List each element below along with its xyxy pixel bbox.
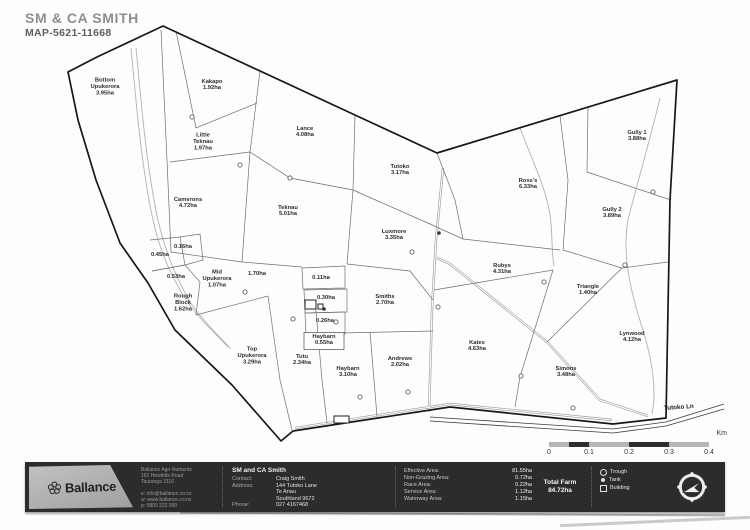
trough-icon (406, 390, 410, 394)
paddock-label: Gully 13.88ha (627, 130, 647, 142)
trough-icon (410, 250, 414, 254)
paddock-label-line: 0.45ha (151, 252, 170, 258)
paddock-label-line: Teknau (193, 139, 213, 145)
map-symbols (190, 115, 655, 423)
paddock-boundary-line (515, 270, 553, 407)
compass-icon (674, 469, 710, 505)
paddock-boundary-line (242, 262, 302, 267)
customer-field-value: 027 4167468 (276, 502, 308, 509)
paddock-label-line: Gully 2 (602, 207, 621, 213)
paddock-label-line: Tutu (296, 354, 309, 360)
creek-line (520, 128, 554, 266)
trough-legend-icon (600, 469, 607, 476)
trough-icon (243, 290, 247, 294)
paddock-boundary-line (347, 190, 353, 264)
paddock-label-line: 3.10ha (339, 372, 358, 378)
road-label: Tutoko Ln (664, 403, 695, 412)
paddock-label-line: 5.01ha (279, 211, 298, 217)
trough-icon (288, 176, 292, 180)
scan-shadow (180, 512, 725, 517)
paddock-label-line: 4.63ha (468, 346, 487, 352)
paddock-boundary-line (353, 115, 355, 190)
paddock-label-line: 4.08ha (296, 132, 315, 138)
brand-logo-block: Ballance (29, 465, 133, 509)
paddock-label-line: Simons (556, 366, 577, 372)
paddock-label-line: Teknau (278, 205, 298, 211)
area-stat-value: 0.22ha (515, 482, 532, 489)
total-farm-label: Total Farm (544, 479, 577, 487)
paddock-label: Kakapo1.92ha (202, 79, 223, 91)
scan-page-edge (560, 516, 750, 527)
paddock-label-line: 0.55ha (315, 340, 334, 346)
footer-divider (222, 467, 224, 507)
paddock-boundary-line (250, 152, 353, 190)
trough-icon (436, 305, 440, 309)
paddock-boundary-line (587, 172, 671, 200)
area-stat-value: 0.72ha (515, 475, 532, 482)
building-icon (334, 416, 349, 423)
paddock-label-line: Upukerora (91, 84, 121, 90)
paddock-label-line: 4.72ha (179, 203, 198, 209)
company-contact-line: p: 0800 222 090 (141, 503, 217, 509)
paddock-label-line: Lance (297, 126, 315, 132)
trough-icon (571, 406, 575, 410)
paddock-boundary-line (242, 152, 250, 262)
area-summary-block: Effective Area:81.55haNon-Grazing Area:0… (400, 462, 532, 512)
paddock-label-line: 1.07ha (208, 282, 227, 288)
customer-field-label: Phone: (232, 502, 276, 509)
legend-item: Tank (600, 476, 658, 484)
total-farm-value: 84.72ha (548, 487, 572, 495)
farm-boundary-line (68, 26, 677, 441)
paddock-boundary-line (161, 30, 171, 252)
paddock-label-line: Rough (174, 294, 193, 300)
paddock-label: Tutoko3.17ha (391, 164, 410, 176)
building-icon (305, 300, 316, 309)
paddock-label-line: Little (196, 133, 211, 139)
area-stat-label: Waterway Area: (404, 496, 443, 503)
legend-label: Tank (609, 476, 621, 484)
customer-detail-row: Phone:027 4167468 (232, 502, 392, 509)
paddock-label-line: Upukerora (203, 276, 233, 282)
footer-bar: Ballance Ballance Agri-Nutrients161 Hewl… (25, 462, 725, 512)
map-id: MAP-5621-11668 (25, 27, 139, 39)
legend-label: Trough (610, 468, 627, 476)
area-stat-value: 81.55ha (512, 468, 532, 475)
area-stat-row: Waterway Area:1.15ha (404, 496, 532, 503)
paddock-label-line: 1.70ha (248, 271, 267, 277)
paddock-boundary-line (171, 252, 242, 262)
customer-details: Contact:Craig SmithAddress:144 Tutoko La… (232, 476, 392, 509)
paddock-label: Luxmore3.35ha (382, 229, 407, 241)
paddock-label: Lynwood4.12ha (619, 331, 645, 343)
paddock-label-line: Gully 1 (627, 130, 647, 136)
paddock-label-line: Luxmore (382, 229, 407, 235)
trough-icon (519, 374, 523, 378)
paddock-label: BottomUpukerora3.95ha (91, 78, 121, 97)
trough-icon (334, 320, 338, 324)
paddock-label: TopUpukerora3.29ha (238, 347, 268, 366)
paddock-label-line: 3.35ha (385, 235, 404, 241)
paddock-label-line: Andrews (388, 356, 412, 362)
paddock-label: 0.30ha (317, 295, 336, 301)
paddock-label: Triangle1.40ha (577, 284, 600, 296)
scale-bar-segment (669, 442, 709, 447)
scale-unit-label: Km (717, 430, 728, 437)
farm-map-document: Tutoko LnBottomUpukerora3.95haKakapo1.92… (0, 0, 750, 530)
area-stat-label: Effective Area: (404, 468, 439, 475)
paddock-boundary-line (176, 31, 196, 128)
paddock-boundaries (150, 30, 671, 430)
document-header: SM & CA SMITH MAP-5621-11668 (25, 10, 139, 39)
total-farm-block: Total Farm 84.72ha (532, 462, 588, 512)
paddock-label-line: Block (175, 300, 192, 306)
creek-line (626, 98, 660, 414)
scale-bar-segment (569, 442, 589, 447)
scale-tick-label: 0.2 (624, 449, 634, 456)
paddock-label: Haybarn3.10ha (336, 366, 360, 378)
brand-name: Ballance (65, 478, 117, 495)
paddock-boundary-line (463, 239, 560, 250)
paddock-label-line: Haybarn (336, 366, 360, 372)
paddock-label-line: Kates (469, 340, 485, 346)
farm-races (295, 168, 648, 428)
paddock-label-line: Upukerora (238, 353, 268, 359)
paddock-label-line: 3.48ha (557, 372, 576, 378)
paddock-label-line: Triangle (577, 284, 600, 290)
scale-bar-segment (589, 442, 629, 447)
scale-tick-label: 0.4 (704, 449, 714, 456)
compass-block (658, 462, 725, 512)
scale-tick-label: 0.3 (664, 449, 674, 456)
paddock-label-line: 3.95ha (96, 90, 115, 96)
paddock-label: Simons3.48ha (556, 366, 577, 378)
paddock-label-line: 1.40ha (579, 290, 598, 296)
paddock-label: RoughBlock1.62ha (174, 294, 193, 313)
paddock-label: Tutu2.34ha (293, 354, 312, 366)
ballance-logo: Ballance (46, 477, 117, 496)
scale-bar-ticks: 00.10.20.30.4 (549, 449, 711, 458)
scale-bar-segment (629, 442, 669, 447)
area-stat-row: Effective Area:81.55ha (404, 468, 532, 475)
paddock-boundary-line (196, 296, 268, 315)
paddock-label: Lance4.08ha (296, 126, 315, 138)
area-stat-row: Non-Grazing Area:0.72ha (404, 475, 532, 482)
paddock-labels: BottomUpukerora3.95haKakapo1.92haLittleT… (91, 78, 648, 379)
trough-icon (358, 395, 362, 399)
paddock-boundary-line (587, 107, 588, 172)
paddock-label-line: Smiths (375, 294, 394, 300)
footer-divider (591, 467, 593, 507)
legend-label: Building (610, 484, 630, 492)
scale-tick-label: 0 (547, 449, 551, 456)
tank-legend-icon (601, 478, 605, 482)
paddock-label-line: 6.33ha (519, 184, 538, 190)
farm-boundary (68, 26, 677, 441)
paddock-label-line: 2.02ha (391, 362, 410, 368)
paddock-label: 0.26ha (316, 318, 335, 324)
paddock-label: Teknau5.01ha (278, 205, 298, 217)
paddock-label-line: 0.30ha (317, 295, 336, 301)
paddock-label: Smiths2.70ha (375, 294, 394, 306)
paddock-label: MidUpukerora1.07ha (203, 270, 233, 289)
paddock-boundary-line (353, 190, 463, 239)
area-stat-label: Race Area: (404, 482, 431, 489)
paddock-label-line: Ross's (519, 178, 538, 184)
paddock-label-line: 4.12ha (623, 337, 642, 343)
paddock-label: 1.70ha (248, 271, 267, 277)
area-stat-row: Service Area:1.12ha (404, 489, 532, 496)
paddock-label-line: 0.53ha (167, 274, 186, 280)
paddock-label-line: Lynwood (619, 331, 645, 337)
paddock-label-line: 0.26ha (316, 318, 335, 324)
page-title: SM & CA SMITH (25, 10, 139, 26)
paddock-label: 0.11ha (312, 275, 331, 281)
paddock-label-line: 1.92ha (203, 85, 222, 91)
trough-icon (542, 280, 546, 284)
trough-icon (238, 163, 242, 167)
customer-name: SM and CA Smith (232, 467, 392, 474)
customer-block: SM and CA Smith Contact:Craig SmithAddre… (227, 462, 392, 512)
paddock-label-line: 3.17ha (391, 170, 410, 176)
area-stat-row: Race Area:0.22ha (404, 482, 532, 489)
paddock-label-line: 4.31ha (493, 269, 512, 275)
paddock-boundary-line (340, 331, 433, 333)
tank-icon (437, 231, 441, 235)
paddock-label-line: Tutoko (391, 164, 410, 170)
paddock-label: Camerons4.72ha (174, 197, 202, 209)
legend-item: Trough (600, 468, 658, 476)
paddock-label-line: Kakapo (202, 79, 223, 85)
paddock-boundary-line (370, 332, 377, 416)
company-contact-block: Ballance Agri-Nutrients161 Hewletts Road… (133, 462, 219, 512)
map-legend: TroughTankBuilding (596, 462, 658, 512)
area-stat-label: Non-Grazing Area: (404, 475, 450, 482)
paddock-label-line: 3.29ha (243, 359, 262, 365)
paddock-label-line: Camerons (174, 197, 202, 203)
paddock-boundary-line (250, 71, 260, 152)
paddock-boundary-line (622, 262, 668, 268)
paddock-label-line: 1.62ha (174, 306, 193, 312)
area-stat-value: 1.12ha (515, 489, 532, 496)
paddock-label: Andrews2.02ha (388, 356, 412, 368)
paddock-label-line: Bottom (95, 78, 115, 84)
legend-item: Building (600, 484, 658, 492)
paddock-label-line: 3.88ha (628, 136, 647, 142)
area-stat-value: 1.15ha (515, 496, 532, 503)
paddock-label-line: 1.97ha (194, 145, 213, 151)
paddock-boundary-line (170, 152, 250, 162)
paddock-label-line: Haybarn (312, 334, 336, 340)
paddock-label: Kates4.63ha (468, 340, 487, 352)
scale-tick-label: 0.1 (584, 449, 594, 456)
scale-bar-segments (549, 442, 709, 447)
building-legend-icon (600, 485, 607, 492)
paddock-label: Rubys4.31ha (493, 263, 512, 275)
paddock-label: 0.53ha (167, 274, 186, 280)
trough-icon (623, 263, 627, 267)
paddock-label: Haybarn0.55ha (312, 334, 336, 346)
paddock-boundary-line (563, 250, 622, 268)
paddock-label: Gully 23.89ha (602, 207, 621, 219)
paddock-label-line: Mid (212, 270, 222, 276)
farm-map: Tutoko LnBottomUpukerora3.95haKakapo1.92… (0, 0, 750, 458)
area-stat-label: Service Area: (404, 489, 437, 496)
paddock-label: LittleTeknau1.97ha (193, 133, 213, 152)
paddock-boundary-line (560, 116, 568, 250)
paddock-label: 0.45ha (151, 252, 170, 258)
paddock-label-line: 2.70ha (376, 300, 395, 306)
paddock-label: Ross's6.33ha (519, 178, 538, 190)
paddock-label-line: Rubys (493, 263, 511, 269)
building-icon (318, 304, 323, 309)
paddock-label-line: 0.11ha (312, 275, 331, 281)
paddock-boundary-line (196, 103, 257, 128)
paddock-label-line: Top (247, 347, 258, 353)
paddock-boundary-line (268, 296, 292, 430)
paddock-boundary-line (547, 268, 622, 342)
paddock-label-line: 2.34ha (293, 360, 312, 366)
trough-icon (190, 115, 194, 119)
trough-icon (291, 317, 295, 321)
footer-divider (395, 467, 397, 507)
ballance-logo-icon (46, 479, 64, 497)
trough-icon (651, 190, 655, 194)
paddock-label-line: 3.89ha (603, 213, 622, 219)
paddock-label: 0.16ha (174, 244, 193, 250)
paddock-label-line: 0.16ha (174, 244, 193, 250)
scale-bar-segment (549, 442, 569, 447)
